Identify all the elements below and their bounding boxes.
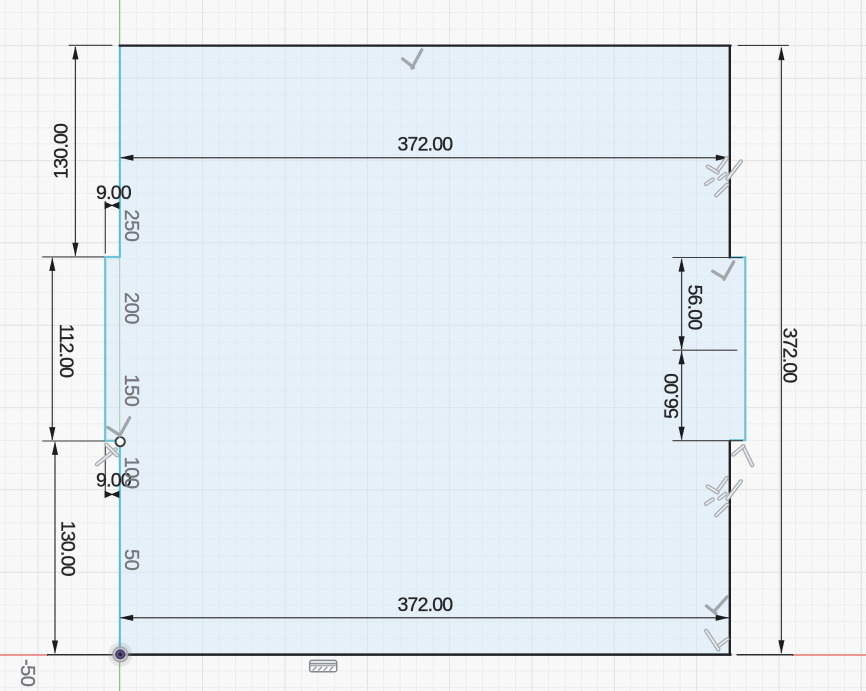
svg-text:56.00: 56.00	[683, 285, 705, 331]
svg-text:150: 150	[120, 374, 142, 406]
svg-text:130.00: 130.00	[57, 521, 79, 577]
svg-text:112.00: 112.00	[55, 324, 77, 378]
svg-text:50: 50	[120, 549, 142, 571]
svg-text:-50: -50	[16, 659, 38, 687]
svg-text:200: 200	[120, 292, 142, 324]
svg-text:100: 100	[120, 457, 142, 489]
svg-text:56.00: 56.00	[661, 373, 683, 419]
svg-text:130.00: 130.00	[51, 123, 73, 179]
svg-text:372.00: 372.00	[397, 594, 453, 616]
svg-text:372.00: 372.00	[778, 328, 800, 384]
svg-text:9.00: 9.00	[96, 182, 132, 204]
svg-text:250: 250	[120, 209, 142, 241]
svg-text:372.00: 372.00	[397, 134, 453, 156]
